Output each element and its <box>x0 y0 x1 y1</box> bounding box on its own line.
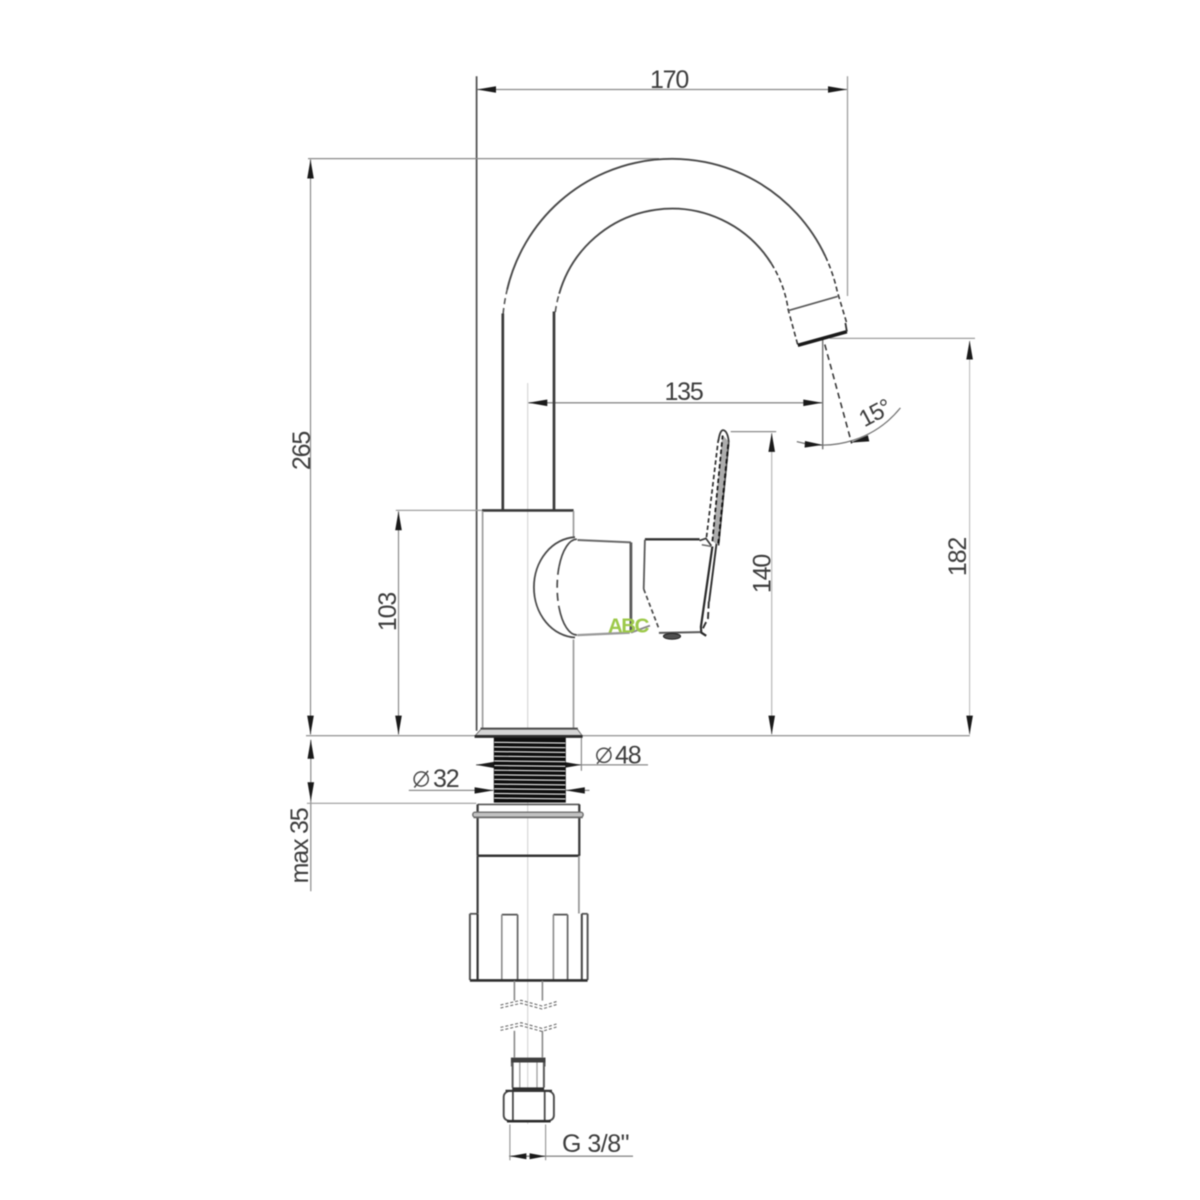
svg-text:170: 170 <box>650 66 688 94</box>
svg-text:265: 265 <box>288 432 316 470</box>
svg-text:max 35: max 35 <box>286 808 314 883</box>
svg-text:48: 48 <box>615 742 641 770</box>
svg-text:G 3/8": G 3/8" <box>562 1130 629 1158</box>
svg-text:135: 135 <box>664 378 702 406</box>
svg-text:ABC: ABC <box>608 614 650 637</box>
svg-text:32: 32 <box>433 765 459 793</box>
svg-text:182: 182 <box>944 538 972 576</box>
svg-text:103: 103 <box>374 593 402 631</box>
svg-text:140: 140 <box>749 555 777 593</box>
